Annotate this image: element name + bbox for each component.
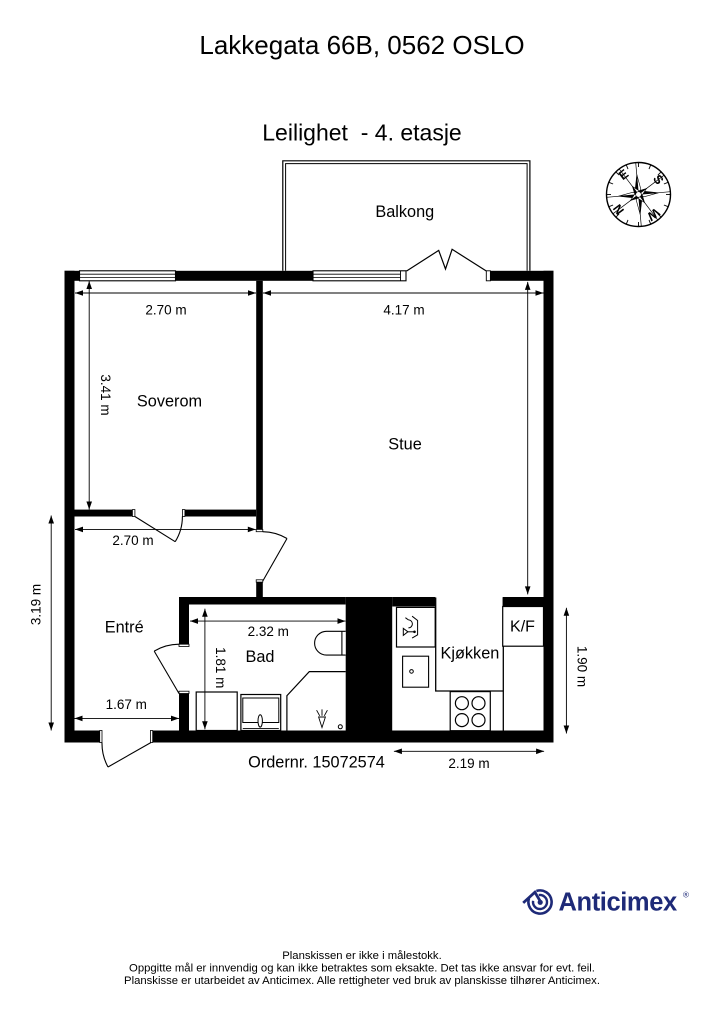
svg-text:Anticimex: Anticimex	[559, 889, 677, 917]
svg-text:2.70 m: 2.70 m	[145, 303, 186, 318]
svg-text:2.19 m: 2.19 m	[448, 756, 489, 771]
svg-text:®: ®	[683, 891, 689, 900]
svg-text:Planskissen er ikke i målestok: Planskissen er ikke i målestokk.	[282, 950, 441, 962]
svg-text:3.41 m: 3.41 m	[98, 374, 113, 415]
svg-text:3.19 m: 3.19 m	[29, 584, 44, 625]
svg-text:4.17 m: 4.17 m	[383, 303, 424, 318]
svg-text:Lakkegata 66B, 0562 OSLO: Lakkegata 66B, 0562 OSLO	[199, 30, 524, 60]
svg-text:Stue: Stue	[388, 435, 422, 453]
svg-text:K/F: K/F	[510, 619, 535, 636]
svg-text:Planskisse er utarbeidet av An: Planskisse er utarbeidet av Anticimex. A…	[124, 975, 600, 987]
svg-text:Bad: Bad	[246, 648, 275, 666]
svg-text:2.70 m: 2.70 m	[112, 533, 153, 548]
svg-text:Oppgitte mål er innvendig og k: Oppgitte mål er innvendig og kan ikke be…	[129, 962, 595, 974]
svg-text:2.32 m: 2.32 m	[248, 624, 289, 639]
svg-text:Leilighet - 4. etasje: Leilighet - 4. etasje	[262, 120, 461, 146]
svg-text:Ordernr. 15072574: Ordernr. 15072574	[248, 754, 385, 772]
svg-text:1.67 m: 1.67 m	[106, 697, 147, 712]
svg-text:Balkong: Balkong	[375, 203, 434, 221]
svg-text:1.90 m: 1.90 m	[575, 646, 590, 687]
svg-text:1.81 m: 1.81 m	[213, 647, 228, 688]
svg-text:Kjøkken: Kjøkken	[440, 644, 499, 662]
svg-text:Entré: Entré	[105, 619, 144, 637]
svg-text:Soverom: Soverom	[137, 392, 202, 410]
